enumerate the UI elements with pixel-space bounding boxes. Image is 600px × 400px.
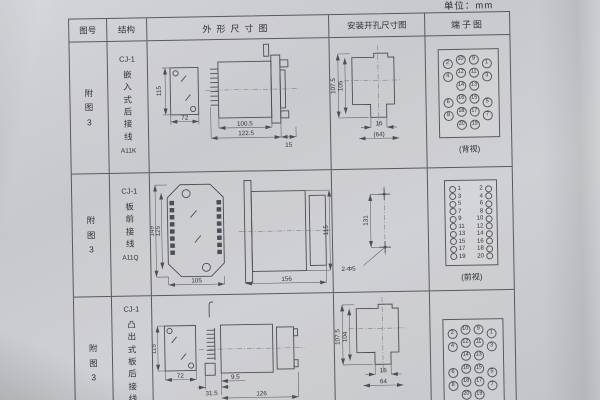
install-drawing-a11k: 107.5 105 16 (64) [329, 36, 428, 169]
hole-spec-label: 2-Φ5 [341, 266, 356, 273]
terminal-cell: 3 [482, 71, 492, 81]
terminal-cell: 15 [474, 363, 484, 373]
side-view: 156 115 [238, 179, 334, 284]
header-terminal: 端子图 [425, 12, 509, 35]
terminal-cell: 10 [474, 215, 492, 221]
install-drawing-cell: 131 2-Φ5 [332, 168, 431, 292]
terminal-cell: 8 [443, 111, 453, 121]
terminal-cell: 6 [448, 368, 458, 378]
terminal-cell: 7 [449, 208, 467, 214]
terminal-cell: 17 [450, 246, 468, 252]
dim-rear-length: 15 [285, 142, 293, 149]
terminal-cell: 11 [473, 337, 483, 347]
terminal-cell: 2 [447, 329, 457, 339]
outline-drawing-cell: 115 72 [152, 293, 336, 400]
terminal-cell: 19 [450, 253, 468, 259]
table-row-a11h: 附图3 CJ-1 凸出式板后接线 A11H [74, 289, 516, 400]
terminal-diagram-cell: 1234567891011121314151617181920 (前视) [428, 167, 514, 290]
terminal-grid-back: 2109141211314136161558181772019 [442, 54, 494, 132]
model-code: A11Q [122, 255, 138, 262]
terminal-box: 2109141211314136161558181772019 [437, 48, 500, 138]
terminal-cell: 12 [456, 68, 466, 78]
terminal-cell: 15 [450, 238, 468, 244]
terminal-cell: 9 [449, 216, 467, 222]
structure-cell: CJ-1 嵌入式后接线 A11K [107, 41, 149, 173]
terminal-cell: 14 [461, 351, 471, 361]
dim-front-width: 72 [181, 115, 189, 122]
header-structure: 结构 [107, 18, 147, 41]
terminal-cell: 16 [461, 364, 471, 374]
terminal-cell: 17 [474, 376, 484, 386]
front-view: 115 72 [152, 326, 196, 381]
dim-outer-height: 107.5 [334, 329, 341, 345]
page-content: 单位：mm 图号 结构 外形尺寸图 安装开孔尺寸图 端子图 附图3 CJ-1 [0, 0, 600, 400]
terminal-cell: 9 [468, 55, 478, 65]
side-view: 9.5 31.5 126 [196, 300, 306, 398]
dim-overall-width: 64 [380, 378, 388, 385]
figure-number: 附图3 [74, 297, 114, 400]
terminal-cell: 14 [474, 230, 492, 236]
dim-overall-width: (64) [373, 131, 384, 138]
terminal-cell: 5 [449, 201, 467, 207]
terminal-cell: 7 [487, 380, 497, 390]
terminal-box: 2109141211314136161558181772019 [442, 318, 505, 400]
terminal-grid-back: 2109141211314136161558181772019 [447, 324, 499, 400]
outline-drawing-a11k: 115 72 [147, 38, 331, 172]
terminal-cell: 1 [486, 328, 496, 338]
terminal-cell: 11 [469, 68, 479, 78]
structure-desc: 板前接线 [125, 201, 136, 250]
terminal-cell: 8 [474, 208, 492, 214]
header-figure-no: 图号 [69, 19, 107, 42]
terminal-cell: 12 [474, 223, 492, 229]
install-drawing-cell: 107.5 105 16 (64) [329, 36, 428, 169]
dim-stud-length: 31.5 [205, 390, 218, 397]
unit-label: 单位：mm [444, 0, 494, 12]
table-row-a11k: 附图3 CJ-1 嵌入式后接线 A11K [69, 35, 511, 174]
dim-front-height: 115 [155, 86, 162, 97]
terminal-cell: 7 [482, 110, 492, 120]
structure-cell: CJ-1 凸出式板后接线 A11H [112, 296, 154, 400]
terminal-cell: 13 [474, 350, 484, 360]
figure-number: 附图3 [72, 174, 112, 297]
terminal-cell: 20 [475, 253, 493, 259]
dimension-table: 图号 结构 外形尺寸图 安装开孔尺寸图 端子图 附图3 CJ-1 嵌入式后接线 … [68, 11, 517, 400]
install-drawing-cell: 107.5 104 16 64 [334, 291, 433, 400]
terminal-cell: 16 [456, 94, 466, 104]
terminal-cell: 11 [449, 223, 467, 229]
terminal-cell: 1 [449, 186, 467, 192]
outline-drawing-cell: 115 72 [147, 38, 331, 172]
terminal-cell: 3 [449, 193, 467, 199]
terminal-cell: 3 [486, 341, 496, 351]
terminal-cell: 10 [460, 325, 470, 335]
install-drawing-a11q: 131 2-Φ5 [332, 168, 431, 292]
model-label: CJ-1 [123, 304, 139, 313]
structure-desc: 嵌入式后接线 [122, 69, 133, 143]
dim-body-length: 126 [256, 390, 267, 397]
header-outline: 外形尺寸图 [147, 15, 330, 40]
dim-gap-length: 9.5 [231, 374, 240, 381]
dim-front-width: 105 [191, 277, 202, 284]
terminal-cell: 19 [470, 120, 480, 130]
terminal-cell: 15 [469, 94, 479, 104]
terminal-cell: 18 [461, 377, 471, 387]
terminal-cell: 2 [474, 185, 492, 191]
outline-drawing-cell: 149 125 105 [149, 170, 333, 295]
terminal-cell: 19 [474, 389, 484, 399]
terminal-diagram-cell: 2109141211314136161558181772019 (背视) [430, 290, 516, 400]
terminal-cell: 14 [456, 81, 466, 91]
figure-number: 附图3 [69, 42, 109, 174]
terminal-cell: 16 [475, 238, 493, 244]
terminal-cell: 10 [455, 55, 465, 65]
terminal-cell: 4 [443, 72, 453, 82]
table-row-a11q: 附图3 CJ-1 板前接线 A11Q [72, 166, 514, 297]
dim-front-height: 115 [152, 344, 158, 355]
terminal-cell: 8 [448, 381, 458, 391]
terminal-cell: 5 [482, 97, 492, 107]
terminal-cell: 17 [469, 107, 479, 117]
terminal-box: 1234567891011121314151617181920 [444, 179, 498, 265]
dim-slot-width: 16 [375, 120, 383, 127]
terminal-cell: 6 [443, 98, 453, 108]
dim-inner-height: 125 [154, 225, 161, 236]
terminal-view-label: (前视) [461, 271, 483, 282]
dim-inner-height: 104 [342, 331, 349, 342]
outline-drawing-a11h: 115 72 [152, 293, 336, 400]
terminal-cell: 12 [460, 338, 470, 348]
model-label: CJ-1 [119, 55, 135, 64]
front-view: 149 125 105 [149, 184, 224, 285]
dim-outer-height: 107.5 [330, 78, 337, 94]
model-code: A11K [121, 147, 137, 154]
terminal-cell: 6 [474, 200, 492, 206]
terminal-view-label: (背视) [459, 144, 481, 155]
front-view: 115 72 [155, 67, 198, 125]
terminal-cell: 4 [447, 342, 457, 352]
structure-cell: CJ-1 板前接线 A11Q [110, 173, 152, 296]
model-label: CJ-1 [121, 186, 137, 195]
terminal-cell: 13 [469, 81, 479, 91]
terminal-cell: 2 [442, 59, 452, 69]
dim-body-height: 115 [322, 225, 329, 236]
terminal-diagram-cell: 2109141211314136161558181772019 (背视) [426, 35, 512, 167]
header-install: 安装开孔尺寸图 [329, 13, 426, 37]
dim-total-length: 156 [281, 276, 292, 283]
terminal-cell: 9 [473, 324, 483, 334]
terminal-cell: 20 [461, 390, 471, 400]
document-photo: 单位：mm 图号 结构 外形尺寸图 安装开孔尺寸图 端子图 附图3 CJ-1 [0, 0, 600, 400]
dim-body-length: 100.5 [237, 120, 253, 127]
terminal-cell: 13 [449, 231, 467, 237]
terminal-cell: 5 [487, 367, 497, 377]
terminal-cell: 18 [475, 245, 493, 251]
structure-desc: 凸出式板后接线 [127, 319, 138, 400]
terminal-cell: 18 [456, 107, 466, 117]
dim-total-length: 122.5 [238, 130, 254, 137]
dim-front-width: 72 [176, 373, 184, 380]
terminal-cell: 1 [481, 58, 491, 68]
terminal-grid-front: 1234567891011121314151617181920 [449, 185, 493, 259]
install-drawing-a11h: 107.5 104 16 64 [334, 291, 433, 400]
dim-hole-spacing: 131 [362, 215, 369, 226]
dim-slot-width: 16 [379, 367, 387, 374]
paper-sheet: 单位：mm 图号 结构 外形尺寸图 安装开孔尺寸图 端子图 附图3 CJ-1 [0, 0, 600, 400]
terminal-cell: 4 [474, 193, 492, 199]
outline-drawing-a11q: 149 125 105 [149, 170, 333, 295]
side-view: 100.5 122.5 15 [204, 44, 299, 151]
terminal-cell: 20 [457, 120, 467, 130]
dim-inner-height: 105 [337, 80, 344, 91]
